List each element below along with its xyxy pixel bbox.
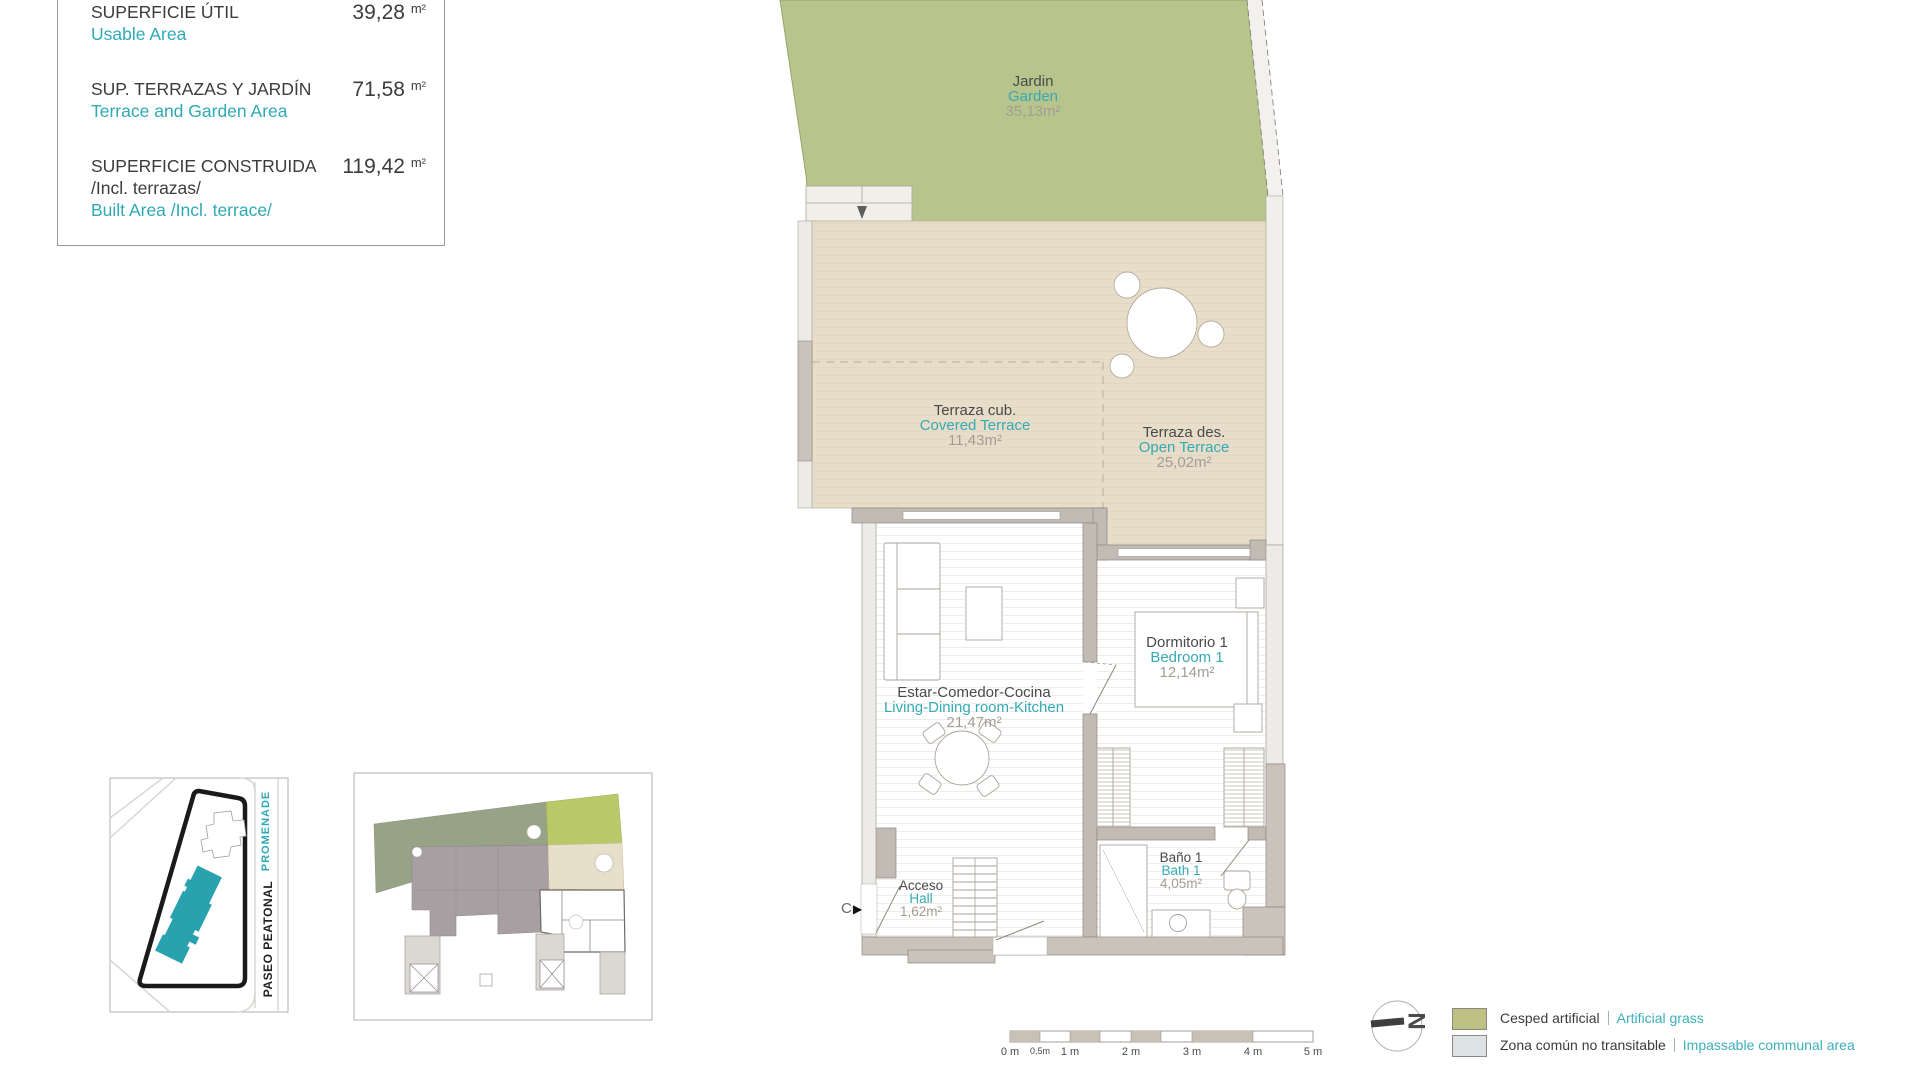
- legend-swatch-communal: [1452, 1035, 1487, 1057]
- street-label-promenade: PROMENADE: [260, 781, 272, 881]
- area-value: 119,42 m²: [342, 155, 426, 179]
- site-plan-key: [354, 773, 652, 1020]
- area-label-en: Usable Area: [91, 23, 426, 45]
- area-value: 39,28 m²: [352, 1, 426, 25]
- bedroom-window: [1118, 549, 1250, 557]
- entrance-opening: [861, 884, 877, 934]
- scale-tick-label: 5 m: [1304, 1046, 1322, 1058]
- table-row: SUP. TERRAZAS Y JARDÍN Terrace and Garde…: [91, 78, 426, 122]
- table-row: SUPERFICIE ÚTIL Usable Area 39,28 m²: [91, 1, 426, 45]
- garden-steps-icon: [806, 186, 912, 221]
- compass-icon: N: [1371, 1001, 1430, 1051]
- compass-north-letter: N: [1403, 1012, 1430, 1029]
- scale-tick-label: 0,5m: [1030, 1046, 1050, 1056]
- legend-item-grass: Cesped artificialArtificial grass: [1500, 1010, 1704, 1026]
- bedside-table-icon: [1236, 578, 1264, 608]
- room-label-open-terrace: Terraza des. Open Terrace 25,02m²: [1139, 425, 1230, 470]
- legend-divider: [1608, 1011, 1609, 1025]
- entrance-marker: C▶: [841, 900, 862, 917]
- scale-tick-label: 1 m: [1061, 1046, 1079, 1058]
- stairs-icon: [953, 858, 997, 937]
- area-label-en: Terrace and Garden Area: [91, 100, 426, 122]
- scale-tick-label: 0 m: [1001, 1046, 1019, 1058]
- room-label-covered-terrace: Terraza cub. Covered Terrace 11,43m²: [920, 403, 1031, 448]
- room-label-living: Estar-Comedor-Cocina Living-Dining room-…: [884, 685, 1064, 730]
- toilet-icon: [1224, 871, 1250, 890]
- room-label-hall: Acceso Hall 1,62m²: [899, 879, 943, 918]
- entrance-arrow-icon: ▶: [853, 902, 862, 916]
- legend-item-communal: Zona común no transitableImpassable comm…: [1500, 1037, 1855, 1053]
- bedside-table-icon: [1234, 704, 1262, 732]
- legend-divider: [1674, 1038, 1675, 1052]
- area-summary-table: SUPERFICIE ÚTIL Usable Area 39,28 m² SUP…: [57, 0, 445, 246]
- area-label-es-sub: /Incl. terrazas/: [91, 177, 426, 199]
- scale-tick-label: 3 m: [1183, 1046, 1201, 1058]
- table-row: SUPERFICIE CONSTRUIDA /Incl. terrazas/ B…: [91, 155, 426, 221]
- room-label-bath1: Baño 1 Bath 1 4,05m²: [1160, 851, 1203, 890]
- key-highlight-garden: [546, 794, 622, 845]
- legend-swatch-grass: [1452, 1008, 1487, 1030]
- street-label-paseo-peatonal: PASEO PEATONAL: [261, 869, 275, 1009]
- coffee-table-icon: [966, 587, 1002, 640]
- room-label-bedroom1: Dormitorio 1 Bedroom 1 12,14m²: [1146, 635, 1228, 680]
- sofa-icon: [884, 543, 940, 680]
- scale-tick-label: 4 m: [1244, 1046, 1262, 1058]
- wardrobe-icon: [1097, 748, 1130, 827]
- area-label-en: Built Area /Incl. terrace/: [91, 199, 426, 221]
- terrace-area: [798, 196, 1283, 545]
- scale-bar: [1010, 1031, 1313, 1042]
- area-value: 71,58 m²: [352, 78, 426, 102]
- sliding-glass-door: [903, 512, 1060, 520]
- scale-tick-label: 2 m: [1122, 1046, 1140, 1058]
- room-label-garden: Jardin Garden 35,13m²: [1005, 74, 1060, 119]
